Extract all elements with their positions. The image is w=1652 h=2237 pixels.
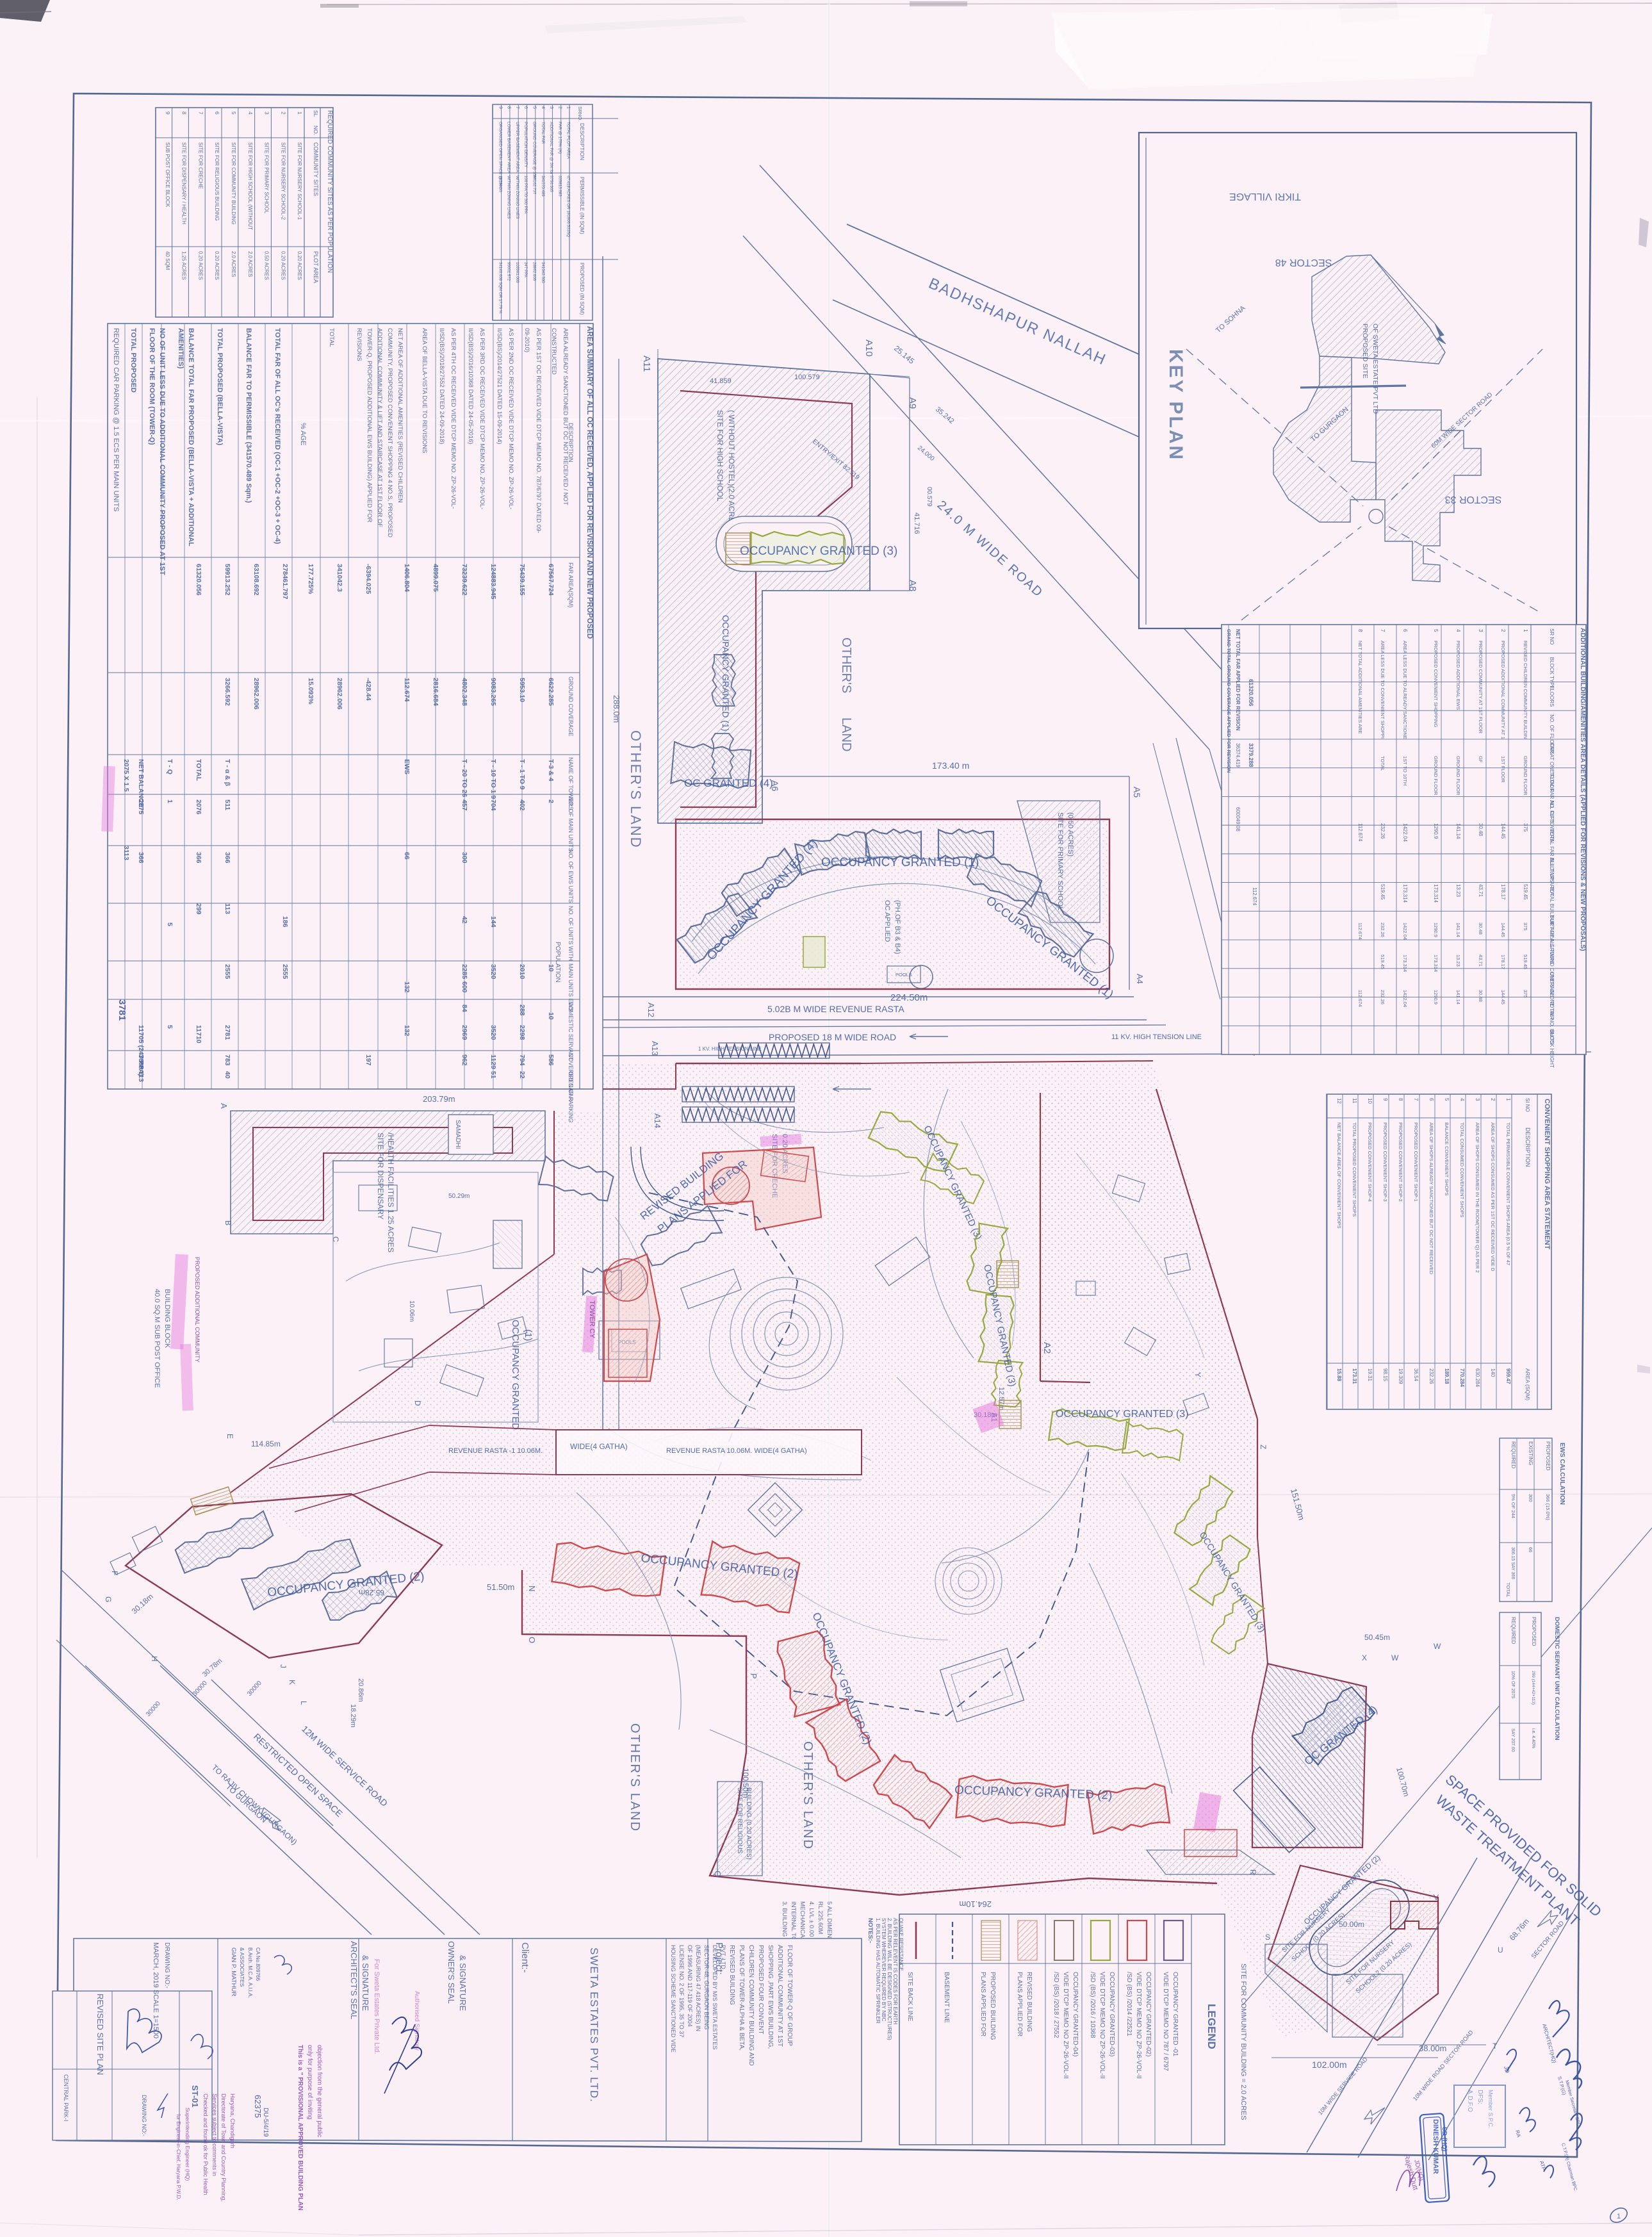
svg-text:For Sweta Estates Private Ltd.: For Sweta Estates Private Ltd. (373, 1959, 380, 2054)
svg-text:POPULATION: POPULATION (554, 942, 561, 983)
svg-text:AS PER 4TH OC RECEIVED VIDE DT: AS PER 4TH OC RECEIVED VIDE DTCP MEMO NO… (450, 328, 457, 509)
svg-text:1422.04: 1422.04 (1402, 922, 1408, 940)
svg-text:COMMUNITY, PROPOSED CONVENIENT: COMMUNITY, PROPOSED CONVENIENT SHOPPING … (386, 328, 393, 537)
svg-text:/SD (BS) /2018 / 27552: /SD (BS) /2018 / 27552 (1052, 1972, 1059, 2038)
svg-text:4802.348: 4802.348 (461, 678, 468, 706)
svg-text:299 (144+42+113): 299 (144+42+113) (1531, 1671, 1535, 1705)
svg-text:28962.006: 28962.006 (532, 262, 537, 281)
svg-text:1: 1 (566, 106, 571, 109)
svg-text:OPEN CAR: OPEN CAR (568, 1071, 574, 1102)
svg-text:22: 22 (518, 1071, 526, 1079)
svg-text:AREA OF SHOPS CONSUMED AS PER: AREA OF SHOPS CONSUMED AS PER 1ST OC REC… (1490, 1122, 1496, 1272)
svg-text:BUILDING BLOCK: BUILDING BLOCK (163, 1289, 171, 1348)
svg-text:REVENUE RASTA 10.06M. WIDE(4: REVENUE RASTA 10.06M. WIDE(4 GATHA) (666, 1447, 807, 1455)
svg-text:6: 6 (1428, 1098, 1434, 1101)
svg-text:E: E (225, 1434, 234, 1439)
svg-text:704: 704 (489, 799, 497, 811)
svg-text:0.50 ACRES: 0.50 ACRES (264, 251, 270, 280)
svg-text:II/SD(BS)/2014/27521 DATED 15-: II/SD(BS)/2014/27521 DATED 15-09-2014) (496, 328, 503, 444)
svg-text:& SIGNATURE: & SIGNATURE (361, 1955, 370, 2011)
svg-text:SECTOR-48, GURGAON BEING: SECTOR-48, GURGAON BEING (703, 1945, 710, 2029)
svg-text:PERMISSIBLE (IN SQM): PERMISSIBLE (IN SQM) (579, 177, 585, 234)
svg-text:FLOOR OF THE ROOM (TOWER-Q): FLOOR OF THE ROOM (TOWER-Q) (148, 328, 156, 445)
svg-text:100 PPA TO 300 PPA: 100 PPA TO 300 PPA (523, 176, 528, 214)
svg-text:GF: GF (1478, 756, 1484, 763)
svg-text:9: 9 (1382, 1098, 1388, 1101)
svg-text:34140.608 SQM OR 17.79 %: 34140.608 SQM OR 17.79 % (498, 262, 502, 314)
svg-text:TOTAL CONSUMED CONVENIENT SHOP: TOTAL CONSUMED CONVENIENT SHOPS (1459, 1122, 1465, 1218)
svg-text:630.284: 630.284 (1475, 1368, 1480, 1387)
svg-text:3520: 3520 (489, 1025, 497, 1040)
svg-text:OTHER'S LAND: OTHER'S LAND (628, 730, 644, 849)
svg-text:783: 783 (224, 1054, 231, 1066)
svg-text:ADDITIONAL COMMUNITY AT 1ST: ADDITIONAL COMMUNITY AT 1ST (776, 1945, 783, 2047)
svg-text:232.26: 232.26 (1380, 922, 1386, 937)
svg-text:13.23: 13.23 (1455, 955, 1461, 967)
svg-text:366: 366 (195, 852, 202, 864)
svg-text:341042.300: 341042.300 (541, 262, 545, 283)
svg-text:278461.797: 278461.797 (281, 564, 289, 600)
svg-text:9083.265: 9083.265 (489, 678, 497, 706)
svg-text:178.17: 178.17 (1500, 955, 1506, 969)
svg-text:15.093%: 15.093% (307, 678, 315, 705)
svg-text:47.418 ACRES OR 191906.533SQ: 47.418 ACRES OR 191906.533SQ (566, 176, 571, 237)
svg-text:ADDITIONAL BUILDING/AMENITIES: ADDITIONAL BUILDING/AMENITIES AREA DETAI… (1579, 628, 1587, 951)
svg-text:41.859: 41.859 (710, 377, 732, 385)
svg-text:SITE FOR HIGH SCHOOL: SITE FOR HIGH SCHOOL (716, 410, 724, 502)
svg-text:U: U (1498, 1946, 1503, 1954)
svg-text:BALANCE CONVENIENT SHOPS: BALANCE CONVENIENT SHOPS (1444, 1122, 1450, 1195)
svg-text:OF SWETA ESTATE PVT LTD: OF SWETA ESTATE PVT LTD (1371, 324, 1379, 414)
svg-text:28962.006: 28962.006 (336, 678, 343, 710)
svg-text:AREA OF BELLA-VISTA DUE TO REV: AREA OF BELLA-VISTA DUE TO REVISIONS (421, 328, 428, 453)
svg-text:PLOT AREA: PLOT AREA (313, 251, 319, 283)
svg-text:2969: 2969 (461, 1025, 468, 1040)
svg-text:X: X (1362, 1653, 1367, 1662)
svg-text:/SD (BS) /2014 /22521: /SD (BS) /2014 /22521 (1125, 1972, 1133, 2036)
svg-text:1422.04: 1422.04 (1402, 990, 1408, 1007)
svg-text:NET BALANCE AREA OF CONVENIENT: NET BALANCE AREA OF CONVENIENT SHOPS (1336, 1122, 1342, 1229)
svg-text:PROPOSED CONVENIENT SHOP-2: PROPOSED CONVENIENT SHOP-2 (1398, 1122, 1403, 1202)
svg-text:SITE FOR DISPENSARY: SITE FOR DISPENSARY (376, 1133, 385, 1220)
svg-text:173.314: 173.314 (1402, 884, 1408, 903)
svg-text:only for purpose of inviting: only for purpose of inviting (306, 2045, 313, 2120)
svg-text:AREA ALREADY SANCTIONED BUT OC: AREA ALREADY SANCTIONED BUT OC NOT RECEI… (562, 328, 569, 505)
svg-text:519.45: 519.45 (1380, 884, 1386, 900)
svg-text:BLOCK HEIGHT: BLOCK HEIGHT (1549, 1029, 1555, 1068)
svg-text:PROPOSED SITE: PROPOSED SITE (1361, 324, 1369, 379)
svg-text:SD (HQ): SD (HQ) (1441, 2127, 1448, 2151)
svg-text:13.23: 13.23 (1455, 884, 1461, 897)
svg-text:3781: 3781 (117, 999, 127, 1020)
svg-text:GROUND FLOOR: GROUND FLOOR (1455, 756, 1461, 796)
svg-text:VIDE DTCP MEMO NO ZP-26-VOL-II: VIDE DTCP MEMO NO ZP-26-VOL-II (1135, 1972, 1142, 2079)
svg-text:II/SD(BS)/2018/27552 DATED 24-: II/SD(BS)/2018/27552 DATED 24-09-2018) (438, 328, 445, 444)
svg-text:519.45: 519.45 (1523, 884, 1528, 900)
svg-text:TOTAL PROPOSED: TOTAL PROPOSED (129, 328, 137, 393)
svg-text:TIKRI VILLAGE: TIKRI VILLAGE (1229, 191, 1301, 202)
svg-text:794: 794 (518, 1054, 526, 1066)
svg-text:2: 2 (1490, 1098, 1496, 1101)
svg-text:REVISED SITE PLAN: REVISED SITE PLAN (95, 1994, 105, 2075)
svg-text:SITE FOR PRIMARY SCHOOL: SITE FOR PRIMARY SCHOOL (264, 142, 270, 214)
svg-text:Project:: Project: (714, 1942, 724, 1975)
svg-text:5: 5 (166, 922, 174, 926)
svg-text:5: 5 (1444, 1098, 1450, 1101)
svg-text:COMMUNITY SITES: COMMUNITY SITES (313, 142, 319, 196)
svg-text:Member S.P.C.: Member S.P.C. (1487, 2090, 1494, 2128)
svg-text:1. BUILDING HAS AUTOMATIC SPR: 1. BUILDING HAS AUTOMATIC SPRINKLER (875, 1918, 881, 2024)
svg-text:2816.684: 2816.684 (432, 678, 439, 706)
svg-text:15.88: 15.88 (1336, 1368, 1342, 1382)
svg-text:T - 1 TO 9: T - 1 TO 9 (518, 759, 526, 790)
svg-text:402: 402 (518, 799, 526, 811)
svg-text:T - 20 TO 26: T - 20 TO 26 (461, 759, 468, 797)
svg-text:59913.252: 59913.252 (224, 564, 231, 596)
svg-text:173.31: 173.31 (1352, 1368, 1357, 1384)
svg-text:61320.056: 61320.056 (195, 564, 202, 596)
svg-text:177.725%: 177.725% (307, 564, 315, 594)
svg-text:OC GRANTED (4): OC GRANTED (4) (684, 777, 773, 789)
svg-text:42: 42 (461, 916, 468, 924)
svg-text:OCCUPANCY GRANTED (3): OCCUPANCY GRANTED (3) (740, 545, 897, 558)
svg-text:0.20 ACRES: 0.20 ACRES (197, 251, 203, 280)
svg-text:2555: 2555 (281, 964, 289, 979)
svg-text:144.45: 144.45 (1500, 922, 1506, 937)
svg-text:NO.: NO. (577, 113, 583, 121)
svg-text:DFS:: DFS: (1476, 2090, 1484, 2104)
svg-text:HOUSING SCHEME SANCTIONED VIDE: HOUSING SCHEME SANCTIONED VIDE (670, 1945, 676, 2053)
svg-text:1: 1 (1617, 2213, 1621, 2220)
svg-text:TOTAL: TOTAL (1505, 1582, 1511, 1597)
svg-text:A8: A8 (907, 580, 918, 591)
svg-text:B.Arch. M.C.A. A.I.I.A.: B.Arch. M.C.A. A.I.I.A. (247, 1947, 253, 1998)
svg-text:C: C (331, 1236, 340, 1242)
svg-text:300: 300 (1528, 1494, 1533, 1502)
svg-text:264.10m: 264.10m (959, 1899, 992, 1909)
svg-text:5: 5 (166, 1025, 174, 1029)
svg-text:PROPOSED CONVENIENT SHOPPING: PROPOSED CONVENIENT SHOPPING (1433, 641, 1439, 727)
svg-text:P: P (749, 1673, 758, 1679)
svg-text:113: 113 (137, 1071, 145, 1082)
svg-text:375: 375 (1523, 990, 1528, 998)
svg-text:LOWER BASEMENT AREA: LOWER BASEMENT AREA (507, 122, 511, 174)
svg-text:1ST FLOOR: 1ST FLOOR (1500, 756, 1506, 783)
svg-text:30.48: 30.48 (1478, 922, 1484, 935)
svg-text:173.40 m: 173.40 m (932, 760, 969, 771)
svg-text:SITE BACK LINE: SITE BACK LINE (906, 1972, 913, 2022)
svg-text:A.D.F.O: A.D.F.O (1466, 2090, 1473, 2112)
svg-text:2076: 2076 (195, 799, 202, 815)
svg-text:335813.683: 335813.683 (557, 176, 562, 197)
svg-text:DESCRIPTION: DESCRIPTION (1525, 1127, 1531, 1167)
svg-text:i.e. 4.40%: i.e. 4.40% (1531, 1728, 1535, 1748)
svg-text:8: 8 (1398, 1098, 1403, 1101)
svg-text:OTHER'S LAND: OTHER'S LAND (628, 1723, 642, 1832)
svg-text:103961.009: 103961.009 (515, 262, 519, 283)
svg-text:SITE FOR RELIGIOUS BUILDING: SITE FOR RELIGIOUS BUILDING (214, 142, 220, 221)
svg-text:7: 7 (1380, 629, 1386, 632)
svg-text:112.674: 112.674 (403, 678, 411, 702)
svg-text:366 (15.0%): 366 (15.0%) (1545, 1494, 1551, 1520)
svg-text:173.314: 173.314 (1433, 955, 1439, 972)
svg-text:144.45: 144.45 (1500, 823, 1506, 839)
svg-text:SITE FOR DISPENSARY / HEALTH: SITE FOR DISPENSARY / HEALTH (181, 142, 187, 224)
svg-text:T - Q: T - Q (166, 759, 174, 774)
svg-text:TOTAL PLOT AREA: TOTAL PLOT AREA (566, 122, 571, 160)
svg-text:SHOPPING ,PART EWS BUILDING,: SHOPPING ,PART EWS BUILDING, (767, 1945, 774, 2049)
svg-text:1290.9: 1290.9 (1433, 823, 1439, 839)
svg-text:98.15: 98.15 (1382, 1368, 1388, 1382)
svg-text:A12: A12 (646, 1003, 656, 1017)
svg-text:UPPER BASEMENT AREA: UPPER BASEMENT AREA (515, 122, 519, 173)
svg-text:for Engineer-in-Chief, Haryana: for Engineer-in-Chief, Haryana P.W.D. (176, 2114, 181, 2200)
svg-text:DOMESTIC SERVANT UNIT CALCULAT: DOMESTIC SERVANT UNIT CALCULATION (1553, 1617, 1560, 1741)
svg-text:51.50m: 51.50m (487, 1582, 514, 1592)
svg-text:N: N (527, 1586, 537, 1591)
svg-text:2: 2 (547, 799, 555, 803)
svg-text:3: 3 (264, 111, 270, 115)
svg-text:T - α & β: T - α & β (224, 759, 231, 787)
svg-text:CHILDREN COMMUNITY BUILDING AN: CHILDREN COMMUNITY BUILDING AND (748, 1945, 755, 2066)
svg-text:SITE FOR COMMUNITY BUILDING: SITE FOR COMMUNITY BUILDING (231, 142, 236, 224)
svg-text:Z: Z (1259, 1445, 1268, 1449)
svg-text:8: 8 (181, 111, 188, 115)
svg-text:& SIGNATURE: & SIGNATURE (458, 1955, 468, 2011)
svg-text:6: 6 (1402, 629, 1408, 632)
svg-text:10: 10 (547, 1012, 555, 1020)
svg-text:WIDE(4 GATHA): WIDE(4 GATHA) (570, 1442, 628, 1451)
svg-text:AREA OF SHOPS CONSUMED IN THE: AREA OF SHOPS CONSUMED IN THE ROOM(TOWER… (1475, 1122, 1480, 1273)
svg-text:141.14: 141.14 (1455, 990, 1461, 1004)
svg-text:178.17: 178.17 (1500, 884, 1506, 900)
svg-text:7: 7 (515, 106, 519, 109)
svg-text:SAY 207.60: SAY 207.60 (1510, 1728, 1515, 1752)
svg-text:288: 288 (518, 1004, 526, 1016)
svg-text:7: 7 (1413, 1098, 1419, 1101)
svg-text:(MEASURING 47.418 ACRES) IN: (MEASURING 47.418 ACRES) IN (695, 1945, 701, 2031)
svg-text:203.79m: 203.79m (423, 1094, 455, 1104)
svg-text:FLOOR OF TOWER-Q OF GROUP: FLOOR OF TOWER-Q OF GROUP (786, 1945, 793, 2046)
svg-text:REQUIRED COMMUNITY SITES AS PE: REQUIRED COMMUNITY SITES AS PER POPULATI… (326, 110, 333, 273)
svg-text:11710: 11710 (195, 1025, 202, 1044)
svg-text:3520: 3520 (489, 964, 497, 979)
svg-text:SITE FOR NURSERY SCHOOL-2: SITE FOR NURSERY SCHOOL-2 (280, 142, 286, 220)
svg-text:114.85m: 114.85m (251, 1439, 281, 1448)
svg-text:A13: A13 (650, 1041, 660, 1056)
svg-text:1: 1 (1523, 629, 1528, 632)
svg-text:REVISED BUILDING: REVISED BUILDING (1026, 1972, 1033, 2032)
svg-text:BALANCE FAR TO PERMISSIBLE (34: BALANCE FAR TO PERMISSIBLE (341570.489 S… (245, 328, 252, 503)
svg-text:LAND: LAND (839, 717, 853, 751)
svg-text:% AGE: % AGE (299, 423, 307, 445)
svg-text:OCCUPANCY GRANTED-04): OCCUPANCY GRANTED-04) (1072, 1972, 1079, 2056)
svg-text:100.579: 100.579 (794, 373, 820, 381)
svg-text:962: 962 (461, 1054, 468, 1066)
svg-text:124883.945: 124883.945 (489, 564, 497, 600)
svg-text:SECTOR 48: SECTOR 48 (1275, 257, 1332, 268)
svg-text:A11: A11 (641, 356, 652, 372)
svg-text:600049.08: 600049.08 (1235, 807, 1241, 832)
svg-text:SI NO: SI NO (1525, 1098, 1530, 1112)
svg-text:67162.737: 67162.737 (532, 176, 537, 195)
svg-text:5756.905: 5756.905 (549, 176, 553, 192)
svg-text:AREA (SQM): AREA (SQM) (1525, 1368, 1531, 1400)
svg-text:-6394.025: -6394.025 (364, 564, 372, 594)
svg-text:65.28m: 65.28m (359, 1588, 384, 1597)
svg-text:KEY PLAN: KEY PLAN (1165, 349, 1186, 461)
svg-text:366: 366 (137, 852, 145, 864)
svg-text:61320.056: 61320.056 (1248, 679, 1254, 707)
svg-text:PROPOSED CONVENIENT SHOP-4: PROPOSED CONVENIENT SHOP-4 (1367, 1122, 1373, 1202)
svg-text:Y: Y (1193, 1372, 1202, 1377)
svg-text:00.579: 00.579 (926, 487, 933, 507)
svg-text:FAR @ 175% (A): FAR @ 175% (A) (557, 122, 562, 154)
svg-text:OTHER'S: OTHER'S (839, 637, 853, 693)
svg-text:5: 5 (1433, 629, 1439, 632)
svg-text:1422.04: 1422.04 (1402, 823, 1408, 842)
svg-text:7: 7 (197, 111, 204, 115)
svg-text:2781: 2781 (224, 1025, 231, 1040)
svg-text:VIDE DTCP MEMO NO 787 / 6797: VIDE DTCP MEMO NO 787 / 6797 (1162, 1972, 1169, 2071)
svg-text:366.15 SAY 366: 366.15 SAY 366 (1510, 1547, 1515, 1579)
svg-text:SWETA ESTATES PVT. LTD.: SWETA ESTATES PVT. LTD. (588, 1947, 600, 2102)
svg-text:67567.724: 67567.724 (547, 564, 555, 596)
svg-text:1ST TO 10TH: 1ST TO 10TH (1402, 756, 1408, 785)
svg-text:4: 4 (247, 111, 254, 115)
svg-text:ST-01: ST-01 (190, 2085, 200, 2108)
svg-text:30.48: 30.48 (1478, 823, 1484, 837)
svg-text:TOTAL FAR OF ALL OC's RECEIVED: TOTAL FAR OF ALL OC's RECEIVED (OC-1 +OC… (274, 328, 281, 545)
svg-text:TOTAL: TOTAL (328, 328, 335, 347)
svg-text:CONVENIENT SHOPPING AREA STATE: CONVENIENT SHOPPING AREA STATEMENT (1543, 1099, 1551, 1250)
svg-text:TOTAL FAR: TOTAL FAR (541, 122, 545, 144)
svg-text:SITE FOR COMMUNITY BUILDING =: SITE FOR COMMUNITY BUILDING = 2.0 ACRES (1239, 1963, 1247, 2120)
svg-text:247 PPA: 247 PPA (523, 262, 528, 278)
svg-text:1290.9: 1290.9 (1433, 922, 1439, 937)
svg-text:99001.572: 99001.572 (507, 262, 511, 281)
svg-text:3: 3 (1475, 1098, 1480, 1101)
svg-text:112.674: 112.674 (1252, 887, 1257, 906)
svg-text:375: 375 (1523, 922, 1528, 931)
svg-text:511: 511 (224, 799, 231, 810)
svg-text:MARCH, 2019 SCALE 1=1500: MARCH, 2019 SCALE 1=1500 (152, 1942, 159, 2038)
svg-text:1: 1 (297, 111, 303, 115)
svg-text:50.45m: 50.45m (1364, 1633, 1390, 1642)
svg-text:19.31: 19.31 (1367, 1368, 1373, 1382)
svg-text:PROPOSED ADDITIONAL EWS: PROPOSED ADDITIONAL EWS (1455, 641, 1461, 710)
svg-text:341042.3: 341042.3 (336, 564, 343, 592)
svg-text:173.314: 173.314 (1402, 955, 1408, 972)
svg-text:-428.44: -428.44 (364, 678, 372, 701)
svg-text:TOWER-Q, PROPOSED ADDITIONAL E: TOWER-Q, PROPOSED ADDITIONAL EWS BUILDIN… (366, 328, 373, 523)
svg-text:11 KV. HIGH TENSION LINE: 11 KV. HIGH TENSION LINE (1111, 1033, 1202, 1041)
svg-text:6: 6 (214, 111, 220, 115)
svg-text:8: 8 (507, 106, 511, 109)
svg-text:J: J (279, 1664, 288, 1668)
svg-text:4: 4 (541, 106, 545, 109)
svg-text:2.0 ACRES: 2.0 ACRES (247, 251, 253, 277)
svg-text:1406.804: 1406.804 (403, 564, 411, 592)
svg-text:300: 300 (461, 852, 468, 864)
svg-text:2555: 2555 (224, 964, 231, 979)
svg-text:TOTAL: TOTAL (195, 759, 202, 782)
svg-text:TOTAL: TOTAL (1380, 756, 1386, 771)
svg-text:WITHIN ZONING LINES: WITHIN ZONING LINES (507, 176, 511, 218)
svg-text:NET AREA OF ADDITIONAL AMENITI: NET AREA OF ADDITIONAL AMENITIES (REVISE… (397, 328, 404, 503)
svg-text:1129: 1129 (489, 1054, 497, 1069)
svg-text:Services subject to comments i: Services subject to comments in (211, 2094, 218, 2176)
svg-text:PROPOSED COMMUNITY AT 1ST FLOO: PROPOSED COMMUNITY AT 1ST FLOOR (1478, 641, 1484, 733)
svg-text:PLANS APPLIED FOR: PLANS APPLIED FOR (1016, 1972, 1023, 2036)
svg-text:AREA LESS DUE TO ALREADY SANCT: AREA LESS DUE TO ALREADY SANCTIONE (1402, 641, 1408, 739)
svg-text:09-2010): 09-2010) (523, 328, 530, 352)
svg-text:Superintending Engineer (HQ): Superintending Engineer (HQ) (184, 2108, 191, 2181)
svg-text:3113: 3113 (122, 846, 130, 860)
svg-text:OCCUPANCY GRANTED (1): OCCUPANCY GRANTED (1) (821, 856, 979, 869)
svg-text:CA No.809766: CA No.809766 (255, 1947, 261, 1981)
svg-text:600: 600 (461, 981, 468, 993)
svg-text:9: 9 (498, 106, 502, 109)
svg-text:A2: A2 (1042, 1342, 1052, 1354)
svg-text:W: W (1391, 1653, 1399, 1662)
svg-text:TOTAL PROPOSED (BELLA-VISTA): TOTAL PROPOSED (BELLA-VISTA) (216, 328, 224, 445)
svg-text:3266.592: 3266.592 (224, 678, 231, 706)
svg-text:AS PER 3RD OC RECEIVED VIDE DT: AS PER 3RD OC RECEIVED VIDE DTCP MEMO NO… (478, 328, 486, 509)
svg-text:232.26: 232.26 (1428, 1368, 1434, 1384)
svg-text:2: 2 (557, 106, 562, 109)
svg-text:3: 3 (1478, 629, 1484, 632)
svg-text:W: W (1434, 1642, 1441, 1651)
svg-text:/HEALTH FACILITIES 1.25 ACRES: /HEALTH FACILITIES 1.25 ACRES (386, 1133, 395, 1252)
svg-text:2: 2 (1500, 629, 1506, 632)
svg-text:(PH.OF B3 & B4): (PH.OF B3 & B4) (894, 900, 901, 954)
svg-text:CONSTRUCTED: CONSTRUCTED (550, 328, 557, 375)
svg-text:BASEMENT LINE: BASEMENT LINE (943, 1972, 950, 2023)
svg-text:OTHER'S LAND: OTHER'S LAND (801, 1741, 815, 1850)
svg-text:QUAKE RESISTANCE: QUAKE RESISTANCE (898, 1918, 904, 1971)
svg-text:2: 2 (280, 111, 286, 115)
svg-text:SITE FOR HIGH SCHOOL (WITHOUT: SITE FOR HIGH SCHOOL (WITHOUT (247, 142, 253, 230)
svg-text:519.45: 519.45 (1523, 955, 1528, 969)
svg-text:DINESH KUMAR: DINESH KUMAR (1432, 2119, 1439, 2174)
svg-text:PLANS APPLIED FOR: PLANS APPLIED FOR (979, 1972, 986, 2036)
svg-text:POPULATION DENSITY: POPULATION DENSITY (523, 122, 528, 168)
svg-text:20.86m: 20.86m (357, 1678, 364, 1702)
svg-text:A4: A4 (1135, 974, 1145, 984)
svg-text:197: 197 (364, 1054, 372, 1066)
svg-text:PROPOSED 18 M WIDE ROAD: PROPOSED 18 M WIDE ROAD (769, 1032, 896, 1042)
svg-text:GROUND COVERAGE @ 35%: GROUND COVERAGE @ 35% (532, 122, 537, 180)
svg-text:/SD (BS) /2016 / 10368: /SD (BS) /2016 / 10368 (1089, 1972, 1096, 2038)
svg-text:51: 51 (489, 1071, 497, 1079)
svg-text:186: 186 (281, 916, 289, 928)
svg-text:112.674: 112.674 (1357, 823, 1363, 842)
svg-text:REVISIONS: REVISIONS (356, 328, 363, 361)
svg-text:144: 144 (489, 916, 497, 928)
svg-text:SECTOR 33: SECTOR 33 (1445, 494, 1502, 505)
svg-text:L: L (299, 1701, 308, 1705)
svg-text:DU-5/4/19: DU-5/4/19 (262, 2108, 269, 2137)
svg-text:36.54: 36.54 (1413, 1368, 1419, 1382)
svg-text:132: 132 (403, 981, 411, 993)
svg-text:9: 9 (165, 111, 171, 115)
svg-text:30.48: 30.48 (1478, 990, 1484, 1002)
svg-text:PROPOSED CONVENIENT SHOP-3: PROPOSED CONVENIENT SHOP-3 (1382, 1122, 1388, 1202)
svg-text:NET TOTAL FAR APPLIED FOR REVI: NET TOTAL FAR APPLIED FOR REVISION (1235, 629, 1241, 731)
svg-text:AREA OF SHOPS ALREADY SANCTION: AREA OF SHOPS ALREADY SANCTIONED BUT OC … (1428, 1122, 1434, 1275)
svg-text:A5: A5 (1132, 787, 1142, 798)
